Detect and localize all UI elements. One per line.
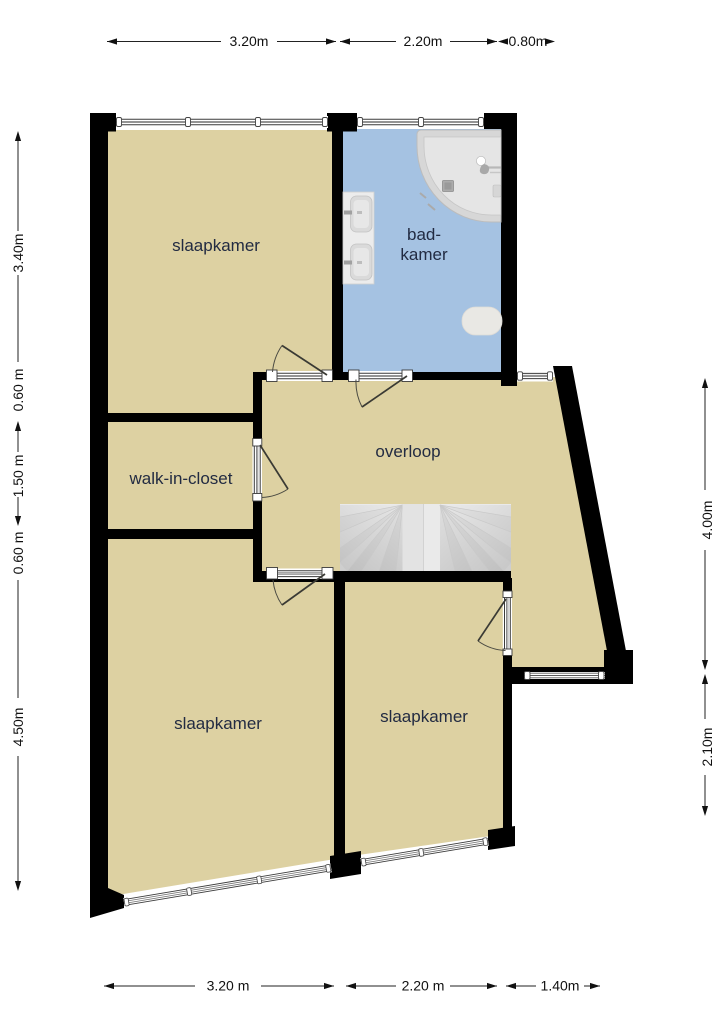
svg-text:slaapkamer: slaapkamer [380, 707, 468, 726]
svg-text:slaapkamer: slaapkamer [174, 714, 262, 733]
svg-text:overloop: overloop [375, 442, 440, 461]
svg-text:0.60 m: 0.60 m [10, 532, 26, 575]
svg-text:1.40m: 1.40m [541, 978, 580, 994]
svg-text:1.50 m: 1.50 m [10, 455, 26, 498]
svg-text:3.20 m: 3.20 m [207, 978, 250, 994]
svg-text:walk-in-closet: walk-in-closet [129, 469, 233, 488]
svg-text:bad-: bad- [407, 225, 441, 244]
svg-text:3.20m: 3.20m [230, 33, 269, 49]
svg-text:2.10m: 2.10m [699, 728, 715, 767]
svg-text:2.20m: 2.20m [404, 33, 443, 49]
svg-text:2.20 m: 2.20 m [402, 978, 445, 994]
svg-text:4.00m: 4.00m [699, 501, 715, 540]
svg-text:4.50m: 4.50m [10, 708, 26, 747]
svg-text:slaapkamer: slaapkamer [172, 236, 260, 255]
svg-text:3.40m: 3.40m [10, 234, 26, 273]
svg-text:kamer: kamer [400, 245, 448, 264]
svg-text:0.80m: 0.80m [509, 33, 548, 49]
svg-text:0.60 m: 0.60 m [10, 369, 26, 412]
